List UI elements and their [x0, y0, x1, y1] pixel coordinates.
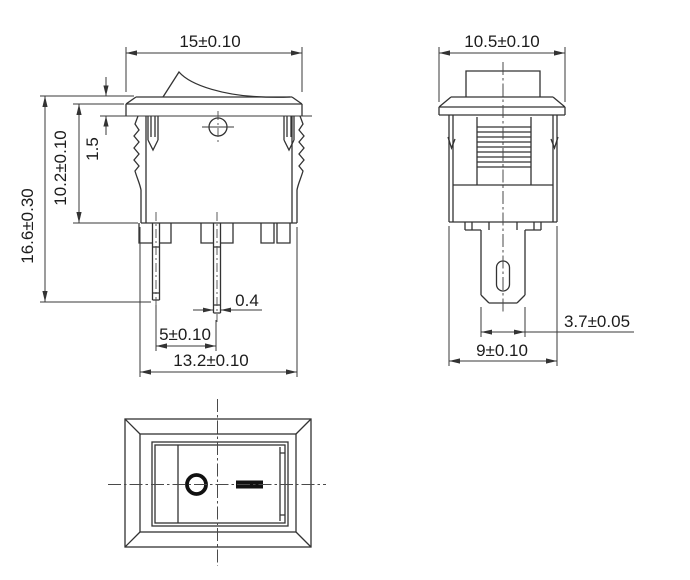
dim-terminal-thickness-label: 0.4 [235, 291, 259, 310]
terminal-base-left [139, 223, 171, 243]
terminal-base-right [261, 223, 290, 243]
ribbed-plunger [477, 117, 531, 185]
dim-terminal-tab-width-label: 3.7±0.05 [564, 312, 630, 331]
snap-prong-left [148, 116, 158, 150]
rocker-switch-drawing: 15±0.10 16.6±0.30 10.2±0.10 1.5 [0, 0, 690, 580]
rocker-actuator-profile [163, 72, 290, 97]
dim-terminal-pitch-label: 5±0.10 [159, 325, 211, 344]
flange-outline [126, 97, 302, 116]
dim-flange-thickness-label: 1.5 [83, 137, 102, 161]
dim-body-height: 10.2±0.10 [51, 104, 138, 223]
flange-end-outline [439, 97, 565, 115]
dim-body-height-label: 10.2±0.10 [51, 130, 70, 206]
top-view [108, 399, 326, 566]
drawing-sheet: 15±0.10 16.6±0.30 10.2±0.10 1.5 [0, 0, 690, 580]
side-view: 10.5±0.10 3.7±0.05 9±0.10 [439, 32, 634, 366]
dim-terminal-pitch: 5±0.10 [156, 305, 216, 351]
dim-overall-width-label: 15±0.10 [179, 32, 240, 51]
dim-overall-depth-label: 10.5±0.10 [464, 32, 540, 51]
dim-terminal-thickness: 0.4 [193, 291, 262, 312]
dim-overall-height: 16.6±0.30 [18, 96, 151, 302]
dim-body-depth-label: 9±0.10 [476, 341, 528, 360]
dim-body-width-label: 13.2±0.10 [173, 351, 249, 370]
dim-overall-height-label: 16.6±0.30 [18, 188, 37, 264]
body-left-wall [134, 116, 146, 223]
dim-body-width: 13.2±0.10 [140, 227, 297, 377]
dim-overall-width: 15±0.10 [126, 32, 302, 92]
dim-flange-thickness: 1.5 [83, 77, 109, 161]
front-view: 15±0.10 16.6±0.30 10.2±0.10 1.5 [18, 32, 312, 377]
dim-overall-depth: 10.5±0.10 [439, 32, 565, 102]
